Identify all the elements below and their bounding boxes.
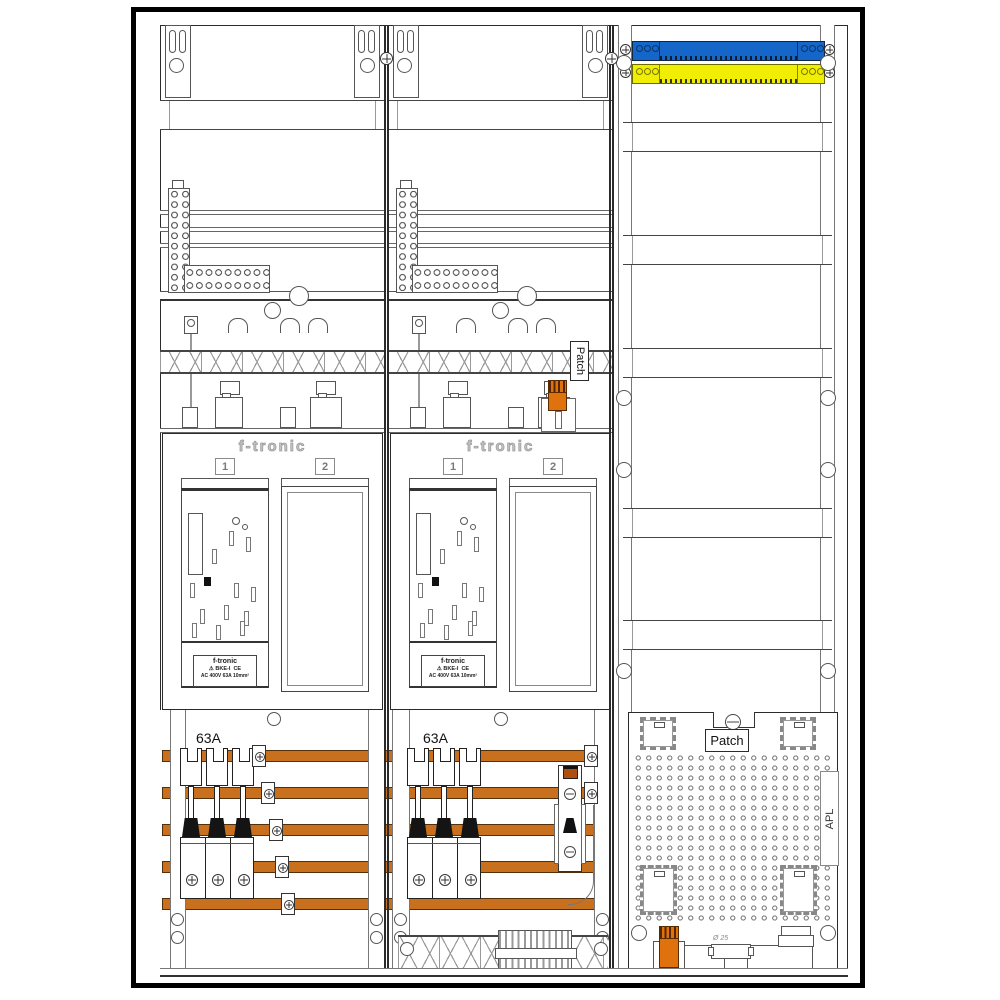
rating-plate-cert: BKE-I xyxy=(443,666,458,672)
plate-screw xyxy=(460,517,468,525)
rating-plate-rating: AC 400V 63A 10mm² xyxy=(194,673,256,679)
cabinet-bottom-rail xyxy=(160,968,848,977)
plate-stud xyxy=(204,577,211,586)
din-rail xyxy=(623,508,832,538)
bracket-slot xyxy=(586,30,593,53)
warn-icon: ⚠ xyxy=(209,666,214,672)
post-hole xyxy=(616,663,632,679)
bolt-head xyxy=(415,319,423,327)
bracket-slot xyxy=(358,30,365,53)
bracket-slot xyxy=(179,30,186,53)
meter-column-1: f-tronic 1 2 xyxy=(160,25,385,977)
post-hole xyxy=(616,462,632,478)
plate-window xyxy=(188,513,203,575)
divider-joint-screw xyxy=(605,52,618,65)
brand-logo: f-tronic xyxy=(163,438,382,455)
technical-drawing-page: 63A 63A xyxy=(0,0,1000,1000)
notch-screw xyxy=(725,714,741,730)
field-number-1: 1 xyxy=(443,458,463,475)
empty-meter-frame xyxy=(509,486,597,692)
clip-arch xyxy=(308,318,328,333)
marker-tag xyxy=(316,381,336,395)
bracket-slot xyxy=(407,30,414,53)
mount-hole xyxy=(492,302,509,319)
grommet xyxy=(517,286,537,306)
empty-meter-frame xyxy=(281,486,369,692)
busbar-mount-screw xyxy=(620,44,631,55)
din-rail xyxy=(623,620,832,650)
clip-arch xyxy=(536,318,556,333)
mounting-box xyxy=(508,407,524,428)
meter-field: f-tronic 1 2 xyxy=(390,433,611,710)
plate-screw xyxy=(470,524,476,530)
ce-mark: CE xyxy=(461,666,469,672)
cable-entry-horizontal xyxy=(184,265,270,293)
post-hole xyxy=(616,55,632,71)
foot-hole xyxy=(820,925,836,941)
din-rail xyxy=(623,235,832,265)
mounting-box xyxy=(443,397,471,428)
bracket-hole xyxy=(588,58,603,73)
cable-entry-horizontal xyxy=(412,265,498,293)
truss-rail xyxy=(160,350,385,374)
bracket-slot xyxy=(368,30,375,53)
rating-plate-cert: BKE-I xyxy=(215,666,230,672)
marker-tag xyxy=(448,381,468,395)
orange-module xyxy=(548,380,567,411)
apl-label: APL xyxy=(824,808,836,829)
warn-icon: ⚠ xyxy=(437,666,442,672)
divider-joint-screw xyxy=(380,52,393,65)
post-hole xyxy=(820,390,836,406)
plate-screw xyxy=(232,517,240,525)
rating-plate: f-tronic ⚠ BKE-I CE AC 400V 63A 10mm² xyxy=(193,655,257,687)
cross-rail xyxy=(160,100,385,130)
thin-rail xyxy=(388,210,613,215)
patch-apl-section: Patch APL Ø 25 xyxy=(628,712,838,975)
thin-rail xyxy=(388,243,613,248)
thin-rail xyxy=(160,243,385,248)
yellow-terminal-busbar xyxy=(632,64,825,84)
clip-arch xyxy=(456,318,476,333)
post-hole xyxy=(820,55,836,71)
apl-strip: APL xyxy=(820,771,839,866)
thin-rail xyxy=(160,210,385,215)
right-column: Patch APL Ø 25 xyxy=(615,25,848,977)
panel-cutout xyxy=(640,717,676,750)
rating-plate: f-tronic ⚠ BKE-I CE AC 400V 63A 10mm² xyxy=(421,655,485,687)
terminal-teeth xyxy=(660,56,799,60)
plate-window xyxy=(416,513,431,575)
clip-arch xyxy=(280,318,300,333)
brand-logo: f-tronic xyxy=(391,438,610,455)
din-rail xyxy=(623,122,832,152)
column-divider xyxy=(609,25,614,977)
mounting-box xyxy=(410,407,426,428)
clip-arch xyxy=(228,318,248,333)
bracket-hole xyxy=(169,58,184,73)
busbar-mount-screw xyxy=(824,44,835,55)
ce-mark: CE xyxy=(233,666,241,672)
thin-rail xyxy=(160,227,385,232)
column-divider xyxy=(384,25,389,977)
cross-rail xyxy=(388,100,613,130)
mounting-box xyxy=(182,407,198,428)
patch-vertical-text: Patch xyxy=(574,347,586,375)
grommet xyxy=(289,286,309,306)
small-bracket xyxy=(778,935,814,947)
pipe-clamp xyxy=(711,944,751,959)
patch-vertical-label: Patch xyxy=(570,341,589,381)
marker-tag xyxy=(220,381,240,395)
meter-mounting-plate: f-tronic ⚠ BKE-I CE AC 400V 63A 10mm² xyxy=(181,488,269,688)
rating-plate-rating: AC 400V 63A 10mm² xyxy=(422,673,484,679)
bracket-slot xyxy=(169,30,176,53)
meter-column-2: f-tronic 1 2 xyxy=(388,25,613,977)
plate-divider xyxy=(182,641,268,643)
patch-module-stem xyxy=(555,411,562,429)
meter-field: f-tronic 1 2 xyxy=(162,433,383,710)
orange-module xyxy=(659,926,679,968)
clip-arch xyxy=(508,318,528,333)
mounting-box xyxy=(310,397,342,428)
mount-hole xyxy=(264,302,281,319)
patch-panel-text: Patch xyxy=(710,733,743,748)
plate-screw xyxy=(242,524,248,530)
bracket-slot xyxy=(596,30,603,53)
field-number-1: 1 xyxy=(215,458,235,475)
field-number-2: 2 xyxy=(543,458,563,475)
terminal-teeth xyxy=(660,79,799,83)
mounting-box xyxy=(215,397,243,428)
plate-stud xyxy=(432,577,439,586)
field-number-2: 2 xyxy=(315,458,335,475)
pipe-diameter-label: Ø 25 xyxy=(713,935,728,942)
bracket-hole xyxy=(360,58,375,73)
panel-cutout xyxy=(780,717,816,750)
post-hole xyxy=(820,462,836,478)
din-rail xyxy=(623,348,832,378)
panel-cutout xyxy=(780,865,817,915)
meter-mounting-plate: f-tronic ⚠ BKE-I CE AC 400V 63A 10mm² xyxy=(409,488,497,688)
foot-hole xyxy=(631,925,647,941)
bracket-slot xyxy=(397,30,404,53)
mounting-box xyxy=(280,407,296,428)
post-hole xyxy=(616,390,632,406)
patch-panel-label: Patch xyxy=(705,729,749,752)
bolt-head xyxy=(187,319,195,327)
bracket-hole xyxy=(397,58,412,73)
plate-divider xyxy=(410,641,496,643)
post-hole xyxy=(820,663,836,679)
thin-rail xyxy=(388,227,613,232)
blue-terminal-busbar xyxy=(632,41,825,61)
panel-cutout xyxy=(640,865,677,915)
